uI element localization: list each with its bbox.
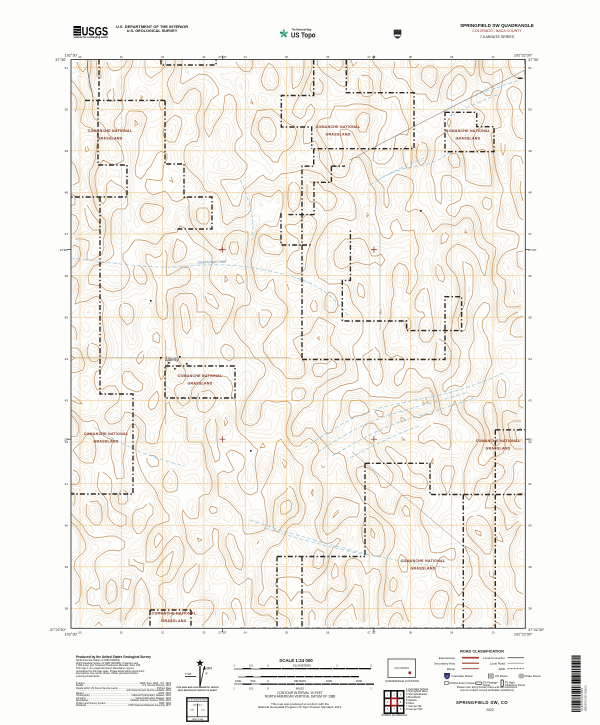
svg-text:37°22'30″: 37°22'30″: [50, 628, 67, 632]
svg-text:2: 2: [370, 664, 372, 668]
svg-text:COMANCHE NATIONAL: COMANCHE NATIONAL: [88, 129, 133, 133]
svg-text:UQ: UQ: [201, 709, 205, 711]
svg-text:MILES: MILES: [296, 686, 305, 690]
svg-text:02: 02: [161, 55, 164, 59]
svg-text:25': 25': [372, 631, 376, 635]
svg-text:41: 41: [65, 482, 69, 486]
svg-text:1000: 1000: [326, 679, 333, 683]
svg-text:Expressway: Expressway: [439, 656, 456, 660]
svg-text:50: 50: [489, 674, 492, 678]
svg-text:09: 09: [450, 631, 453, 635]
svg-text:43: 43: [528, 399, 532, 403]
svg-text:COLORADO: COLORADO: [394, 666, 409, 670]
svg-text:46: 46: [528, 274, 532, 278]
svg-text:US Topo: US Topo: [291, 31, 316, 39]
svg-text:25': 25': [528, 437, 532, 441]
svg-text:Local Connector: Local Connector: [483, 656, 505, 660]
svg-text:U.S. National Grid: U.S. National Grid: [188, 698, 206, 701]
svg-text:COMANCHE NATIONAL: COMANCHE NATIONAL: [178, 374, 223, 378]
svg-text:102°22'30″: 102°22'30″: [514, 633, 533, 637]
svg-text:2: 2: [393, 693, 395, 696]
svg-text:1000: 1000: [235, 679, 242, 683]
svg-text:QUADRANGLE LOCATION: QUADRANGLE LOCATION: [385, 679, 419, 683]
svg-text:25': 25': [372, 55, 376, 59]
svg-text:1: 1: [387, 693, 389, 696]
svg-text:13S: 13S: [190, 709, 194, 711]
svg-text:Secondary Hwy: Secondary Hwy: [434, 661, 456, 665]
svg-text:COMANCHE NATIONAL: COMANCHE NATIONAL: [84, 432, 129, 436]
svg-text:GRASSLAND: GRASSLAND: [187, 382, 212, 386]
svg-text:Interstate Route: Interstate Route: [452, 674, 474, 678]
svg-text:Liberty: Liberty: [165, 357, 179, 362]
svg-text:COMANCHE NATIONAL: COMANCHE NATIONAL: [152, 612, 197, 616]
svg-text:8: 8: [400, 708, 402, 711]
svg-text:45: 45: [528, 315, 532, 319]
svg-text:06: 06: [326, 55, 329, 59]
svg-text:9780607999999: 9780607999999: [581, 687, 584, 711]
svg-text:27'30″: 27'30″: [60, 248, 68, 252]
svg-text:ROAD CLASSIFICATION: ROAD CLASSIFICATION: [460, 650, 504, 654]
svg-text:3: 3: [400, 693, 402, 696]
svg-text:40: 40: [528, 523, 532, 527]
svg-text:US Route: US Route: [495, 674, 508, 678]
svg-text:39: 39: [528, 565, 532, 569]
svg-text:48: 48: [65, 191, 69, 195]
svg-text:50: 50: [65, 107, 69, 111]
svg-text:100,000-m: 100,000-m: [192, 704, 202, 706]
svg-text:10: 10: [492, 55, 495, 59]
svg-text:40: 40: [65, 523, 69, 527]
svg-text:09: 09: [450, 55, 453, 59]
svg-text:49: 49: [65, 149, 69, 153]
svg-text:07: 07: [368, 631, 371, 635]
svg-text:GRASSLAND: GRASSLAND: [410, 567, 435, 571]
svg-text:0: 0: [267, 679, 269, 683]
svg-text:25': 25': [64, 437, 68, 441]
svg-text:SCALE 1:24 000: SCALE 1:24 000: [279, 658, 313, 663]
svg-text:6: 6: [387, 708, 389, 711]
svg-text:NORTH AMERICAN VERTICAL DATUM: NORTH AMERICAN VERTICAL DATUM OF 1988: [265, 694, 336, 698]
svg-text:METERS: METERS: [294, 679, 306, 683]
svg-text:GRASSLAND: GRASSLAND: [161, 619, 186, 623]
svg-text:46: 46: [65, 274, 69, 278]
svg-text:27'30″: 27'30″: [218, 631, 226, 635]
svg-text:27'30″: 27'30″: [528, 248, 536, 252]
svg-text:science for a changing world: science for a changing world: [74, 35, 108, 39]
svg-text:0.5: 0.5: [249, 686, 253, 690]
svg-text:1: 1: [233, 664, 235, 668]
svg-text:45: 45: [65, 315, 69, 319]
svg-text:05: 05: [285, 631, 288, 635]
svg-text:ADJOINING QUADRANGLES: ADJOINING QUADRANGLES: [381, 714, 407, 717]
svg-text:4: 4: [387, 701, 389, 704]
svg-text:44: 44: [528, 357, 532, 361]
svg-text:Sand Arroyo Creek: Sand Arroyo Creek: [198, 259, 227, 264]
svg-text:National Geospatial Program US: National Geospatial Program US Topo Prod…: [258, 705, 342, 709]
svg-text:ISBN 978-0-607-99999-9: ISBN 978-0-607-99999-9: [586, 685, 588, 711]
svg-text:1°28': 1°28': [185, 672, 192, 676]
svg-text:GRASSLAND: GRASSLAND: [93, 440, 118, 444]
svg-text:04: 04: [244, 55, 247, 59]
svg-text:48: 48: [528, 191, 532, 195]
svg-text:50: 50: [528, 107, 532, 111]
svg-text:State Route: State Route: [525, 674, 541, 678]
svg-text:GRASSLAND: GRASSLAND: [325, 133, 350, 137]
svg-text:COMANCHE NATIONAL: COMANCHE NATIONAL: [401, 559, 446, 563]
svg-text:01: 01: [120, 55, 123, 59]
svg-text:8°: 8°: [206, 672, 209, 676]
svg-text:05: 05: [285, 55, 288, 59]
svg-text:51: 51: [65, 66, 69, 70]
svg-text:0: 0: [267, 664, 269, 668]
svg-text:37°30': 37°30': [528, 58, 539, 62]
svg-text:500: 500: [251, 679, 256, 683]
svg-text:102°22'30″: 102°22'30″: [514, 54, 533, 58]
svg-text:47: 47: [65, 232, 69, 236]
svg-text:COMANCHE NATIONAL: COMANCHE NATIONAL: [316, 125, 361, 129]
svg-text:COMANCHE NATIONAL: COMANCHE NATIONAL: [476, 439, 521, 443]
svg-text:51: 51: [528, 66, 532, 70]
svg-text:Local Road: Local Road: [490, 661, 506, 665]
svg-text:03: 03: [202, 631, 205, 635]
svg-text:27'30″: 27'30″: [218, 55, 226, 59]
svg-text:37°30': 37°30': [55, 58, 66, 62]
svg-text:MN: MN: [207, 667, 213, 671]
svg-text:37°22'30″: 37°22'30″: [528, 628, 545, 632]
svg-text:02: 02: [161, 631, 164, 635]
svg-text:102°30': 102°30': [65, 54, 78, 58]
svg-text:may be revised; consult applic: may be revised; consult applicable juris…: [460, 688, 515, 691]
svg-text:FS/FH Entry Route: FS/FH Entry Route: [449, 681, 475, 685]
svg-text:GRASSLAND: GRASSLAND: [485, 447, 510, 451]
svg-text:10: 10: [492, 631, 495, 635]
svg-text:08: 08: [409, 55, 412, 59]
svg-text:1: 1: [233, 686, 235, 690]
svg-text:1: 1: [370, 686, 372, 690]
svg-text:07: 07: [368, 55, 371, 59]
svg-text:47: 47: [528, 232, 532, 236]
svg-text:102°30': 102°30': [65, 633, 78, 637]
svg-text:GRASSLAND: GRASSLAND: [97, 137, 122, 141]
svg-text:49: 49: [528, 149, 532, 153]
svg-text:41: 41: [528, 482, 532, 486]
svg-text:7: 7: [393, 708, 395, 711]
svg-text:04: 04: [244, 631, 247, 635]
svg-text:00: 00: [79, 55, 82, 59]
svg-text:08: 08: [409, 631, 412, 635]
svg-text:KILOMETERS: KILOMETERS: [293, 664, 311, 668]
svg-text:38: 38: [528, 607, 532, 611]
svg-text:06: 06: [326, 631, 329, 635]
svg-text:0: 0: [267, 686, 269, 690]
svg-text:43: 43: [65, 399, 69, 403]
svg-text:03: 03: [202, 55, 205, 59]
svg-text:Ramp: Ramp: [447, 667, 455, 671]
svg-text:0.5: 0.5: [249, 664, 253, 668]
svg-text:38: 38: [65, 607, 69, 611]
svg-text:GRID ZONE: GRID ZONE: [191, 719, 203, 721]
svg-text:5: 5: [400, 701, 402, 704]
svg-text:1: 1: [336, 664, 338, 668]
svg-text:44: 44: [65, 357, 69, 361]
svg-text:GRASSLAND: GRASSLAND: [455, 137, 480, 141]
svg-text:2000: 2000: [356, 679, 363, 683]
svg-text:COMANCHE NATIONAL: COMANCHE NATIONAL: [446, 129, 491, 133]
svg-text:00: 00: [79, 631, 82, 635]
svg-text:01: 01: [120, 631, 123, 635]
svg-text:4WD: 4WD: [498, 667, 506, 671]
svg-text:39: 39: [65, 565, 69, 569]
